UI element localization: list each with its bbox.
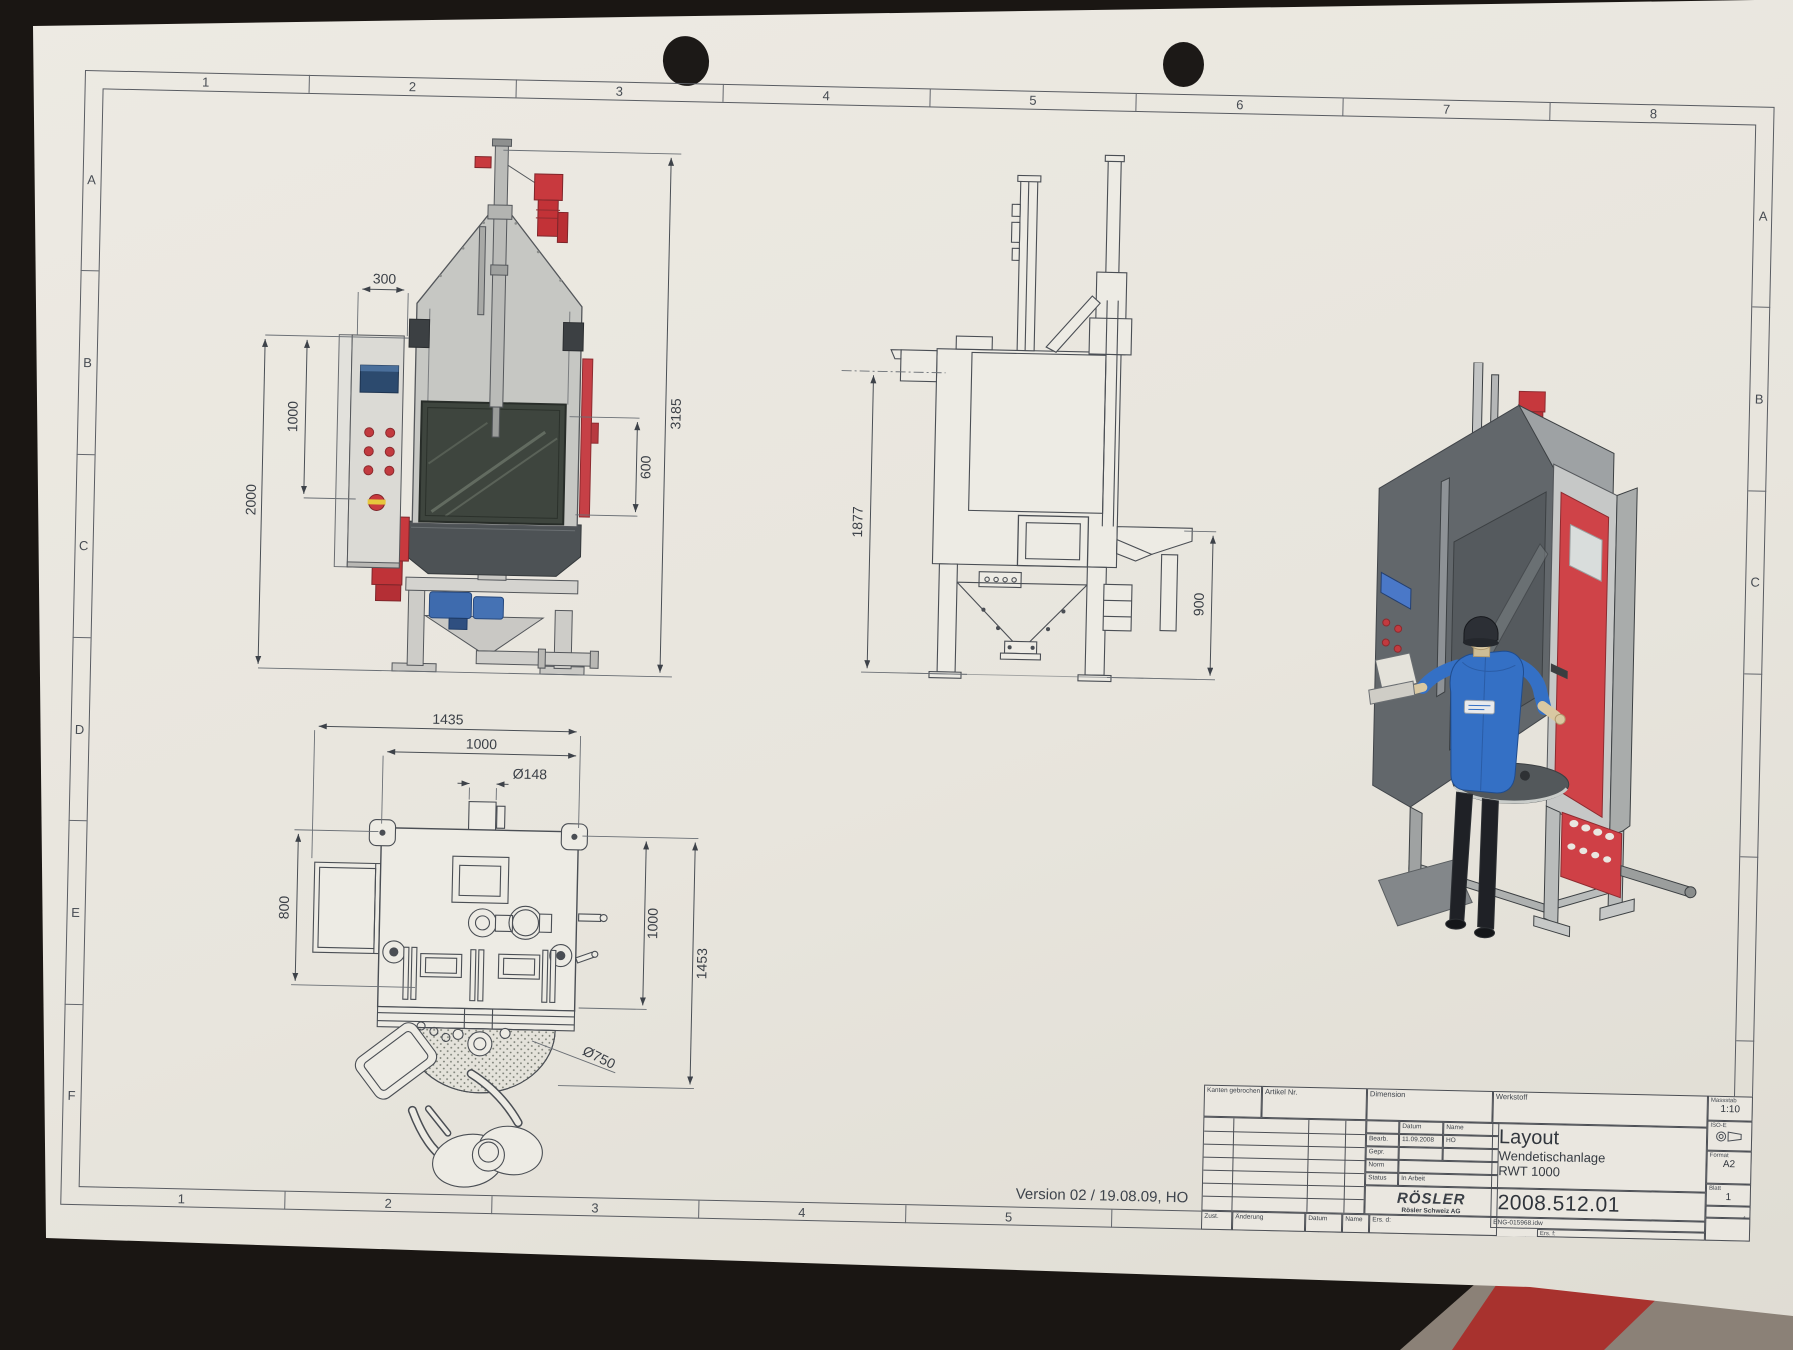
dim-text: 3185 (667, 398, 684, 430)
tb-ers-f-label: Ers. f: (1540, 1231, 1556, 1237)
frame-label (1740, 674, 1762, 858)
drawing-area: 1 2 3 4 5 6 7 8 1 2 3 4 5 A B (60, 70, 1774, 1242)
tb-artikel-cell: Artikel Nr. (1261, 1086, 1367, 1120)
turn-table-side (1103, 526, 1192, 632)
side-view-machine (884, 151, 1200, 684)
tb-norm-label: Norm (1368, 1161, 1384, 1168)
tb-bearb-name-cell: HO (1443, 1135, 1499, 1149)
tb-bearb-datum-cell: 11.09.2008 (1399, 1134, 1443, 1148)
tb-bearb-name: HO (1446, 1137, 1456, 1144)
tb-blatt-cell: Blatt 1 (1706, 1184, 1751, 1207)
tb-artikel-label: Artikel Nr. (1265, 1087, 1298, 1097)
tb-aenderung-label: Änderung (1235, 1213, 1263, 1221)
top-view-drawing: 1435 1000 Ø148 800 1000 1453 Ø750 (260, 709, 741, 1214)
dim-text: 300 (373, 270, 397, 287)
title-block: Kanten gebrochen Artikel Nr. Dimension W… (1201, 1085, 1753, 1242)
dim-text: Ø148 (513, 766, 548, 783)
dim-text: 800 (276, 895, 293, 919)
tb-name-col-label: Name (1345, 1216, 1362, 1223)
tb-datum-col-cell: Datum (1305, 1213, 1342, 1233)
tb-bearb-label: Bearb. (1369, 1135, 1388, 1142)
tb-status-label: Status (1368, 1174, 1387, 1181)
dim-text: 1000 (644, 908, 661, 940)
tb-ers-d-label: Ers. d: (1372, 1216, 1391, 1223)
tb-gepr-label: Gepr. (1369, 1148, 1385, 1155)
company-name: Rösler Schweiz AG (1365, 1206, 1496, 1216)
drawing-number: 2008.512.01 (1491, 1189, 1705, 1220)
tb-title-cell: Layout Wendetischanlage RWT 1000 (1491, 1123, 1707, 1193)
frame-label: 5 (906, 1205, 1113, 1228)
tb-status-value: In Arbeit (1401, 1175, 1425, 1183)
isometric-view-illustration (1311, 359, 1724, 980)
tb-dimension-label: Dimension (1370, 1089, 1406, 1099)
front-view-drawing: 3185 2000 1000 300 600 (242, 100, 705, 695)
dust-hopper (424, 616, 543, 653)
iso-label: ISO-E (1708, 1122, 1751, 1130)
tb-zust-label: Zust. (1204, 1213, 1219, 1220)
tb-number-cell: 2008.512.01 (1490, 1188, 1706, 1222)
tb-dimension-cell: Dimension (1366, 1088, 1493, 1123)
tb-empty-right-cell (1705, 1218, 1750, 1242)
format-value: A2 (1707, 1159, 1750, 1171)
tb-blatt-total-cell: 1 (1705, 1206, 1750, 1219)
punch-hole-icon (658, 32, 713, 90)
dim-text: 1000 (284, 401, 301, 433)
tb-bearb-cell: Bearb. (1366, 1133, 1399, 1147)
shirt-logo-patch (1464, 700, 1494, 714)
tb-werkstoff-cell: Werkstoff (1492, 1091, 1708, 1128)
tb-bearb-datum: 11.09.2008 (1402, 1136, 1434, 1144)
frame-label: B (1748, 308, 1770, 492)
tb-name-header-cell: Name (1443, 1122, 1499, 1136)
dim-text: 900 (1190, 592, 1207, 616)
frame-label (1736, 858, 1758, 1042)
tb-gepr-name-cell (1443, 1148, 1499, 1162)
drawing-sheet: 1 2 3 4 5 6 7 8 1 2 3 4 5 A B (0, 0, 1793, 1350)
tb-name-header: Name (1446, 1124, 1463, 1131)
frame-label: 1 (78, 1187, 285, 1210)
tb-kanten-cell: Kanten gebrochen (1203, 1085, 1262, 1118)
tb-ers-d-cell: Ers. d: (1369, 1214, 1497, 1236)
tb-datum-header-cell: Datum (1399, 1121, 1443, 1135)
tb-kanten-label: Kanten gebrochen (1207, 1087, 1260, 1095)
frame-label: C (1744, 491, 1766, 675)
tb-massstab-cell: Massstab 1:10 (1707, 1096, 1753, 1122)
dim-text: Ø750 (580, 1042, 618, 1072)
tb-status-cell: Status (1365, 1172, 1398, 1186)
blast-unit-red (534, 174, 563, 201)
dim-text: 1435 (432, 711, 464, 728)
dim-text: 600 (637, 455, 654, 479)
tb-company-cell: RÖSLER Rösler Schweiz AG (1364, 1185, 1498, 1217)
side-view-drawing: 1877 900 (757, 115, 1249, 695)
iso-machine (1369, 360, 1707, 939)
tb-empty-cell (1366, 1120, 1399, 1134)
valve-blue (429, 592, 472, 619)
dim-text: 1877 (849, 506, 866, 538)
frame-label: A (1752, 124, 1774, 308)
photo-of-technical-drawing: 1 2 3 4 5 6 7 8 1 2 3 4 5 A B (0, 0, 1793, 1350)
projection-symbol-icon (1714, 1130, 1744, 1144)
tb-datum-col-label: Datum (1308, 1215, 1327, 1222)
tb-norm-cell: Norm (1365, 1159, 1398, 1173)
tb-name-col-cell: Name (1342, 1214, 1369, 1234)
tb-gepr-datum-cell (1399, 1147, 1443, 1161)
tb-revision-table (1201, 1117, 1366, 1215)
dim-text: 1000 (466, 735, 498, 752)
blatt-value: 1 (1707, 1192, 1750, 1204)
massstab-value: 1:10 (1709, 1104, 1752, 1116)
punch-hole-icon (1163, 42, 1204, 87)
file-name: ENG-015968.idw (1493, 1219, 1543, 1227)
front-view-machine (332, 136, 610, 676)
tb-format-cell: Format A2 (1706, 1151, 1752, 1185)
dim-text: 1453 (693, 948, 710, 980)
tb-iso-cell: ISO-E (1707, 1121, 1753, 1152)
tb-datum-header: Datum (1402, 1123, 1421, 1130)
tb-aenderung-cell: Änderung (1232, 1211, 1305, 1232)
top-view-machine (308, 798, 610, 1196)
tb-werkstoff-label: Werkstoff (1496, 1092, 1528, 1102)
tb-zust-cell: Zust. (1201, 1211, 1232, 1231)
tb-gepr-cell: Gepr. (1366, 1146, 1399, 1160)
